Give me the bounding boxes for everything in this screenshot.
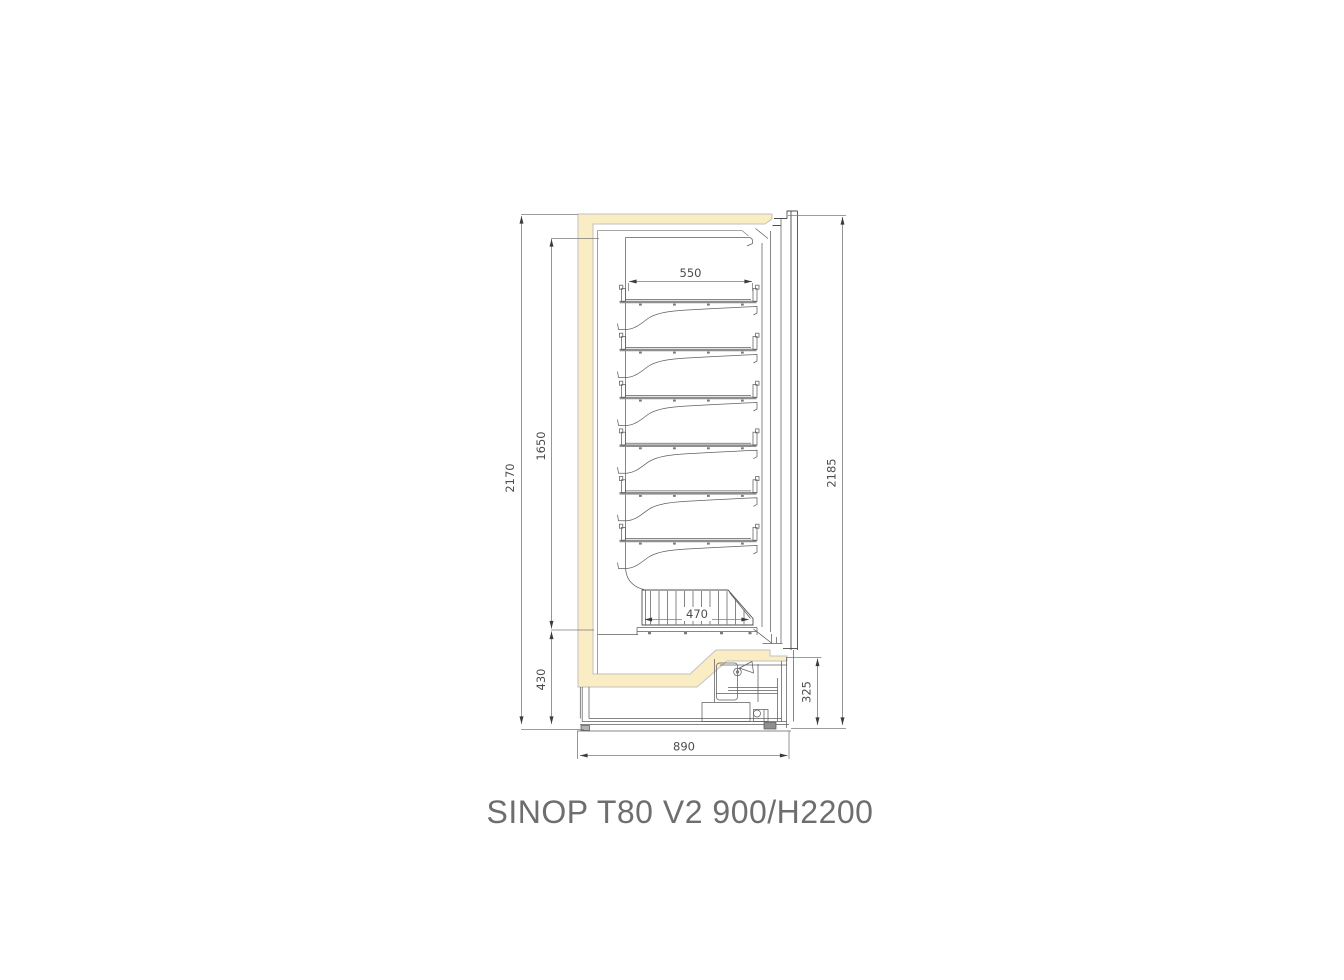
shelf [618,477,760,521]
aux-component [754,710,769,722]
shelf [618,524,760,568]
dim-label-2170: 2170 [503,463,517,492]
dim-label-890: 890 [673,740,695,754]
door-outer-edge [787,211,798,650]
interior-ceiling [626,238,753,247]
shelf [618,285,760,329]
basket-tray [637,628,757,636]
drawing-title: SINOP T80 V2 900/H2200 [487,794,874,830]
glass-door [762,211,798,650]
aux-dial [754,710,761,717]
base-left-post [580,687,589,722]
door-frame-top [773,211,798,226]
dimension-shelf-depth: 550 [629,266,753,291]
dimension-machine-compartment: 325 [786,658,822,726]
shelf [618,333,760,377]
shelf-stack [618,285,760,568]
compartment-right-wall [782,650,794,728]
dimension-overall-height-right: 2185 [788,216,846,729]
liner-ceiling [598,231,749,237]
dimension-overall-depth: 890 [578,732,790,760]
dim-label-1650: 1650 [534,431,548,460]
dimension-overall-height-left: 2170 [503,215,584,730]
compressor-unit [702,659,787,722]
dim-label-430: 430 [534,669,548,691]
base-rails [580,719,789,725]
right-caster [764,723,776,730]
dimension-base-height: 430 [534,632,554,725]
shelf [618,381,760,425]
compressor-body [717,663,738,700]
dimension-basket-depth: 470 [645,607,750,622]
air-outlet-vane [756,229,769,239]
technical-drawing: 2170 1650 430 550 470 2185 [0,0,1344,980]
drawing-page: 2170 1650 430 550 470 2185 [0,0,1344,980]
dim-label-325: 325 [800,681,814,703]
dim-label-2185: 2185 [825,458,839,487]
dim-label-550: 550 [680,266,702,280]
condenser-lines [716,688,778,694]
dim-label-470: 470 [686,607,708,621]
shelf [618,429,760,473]
